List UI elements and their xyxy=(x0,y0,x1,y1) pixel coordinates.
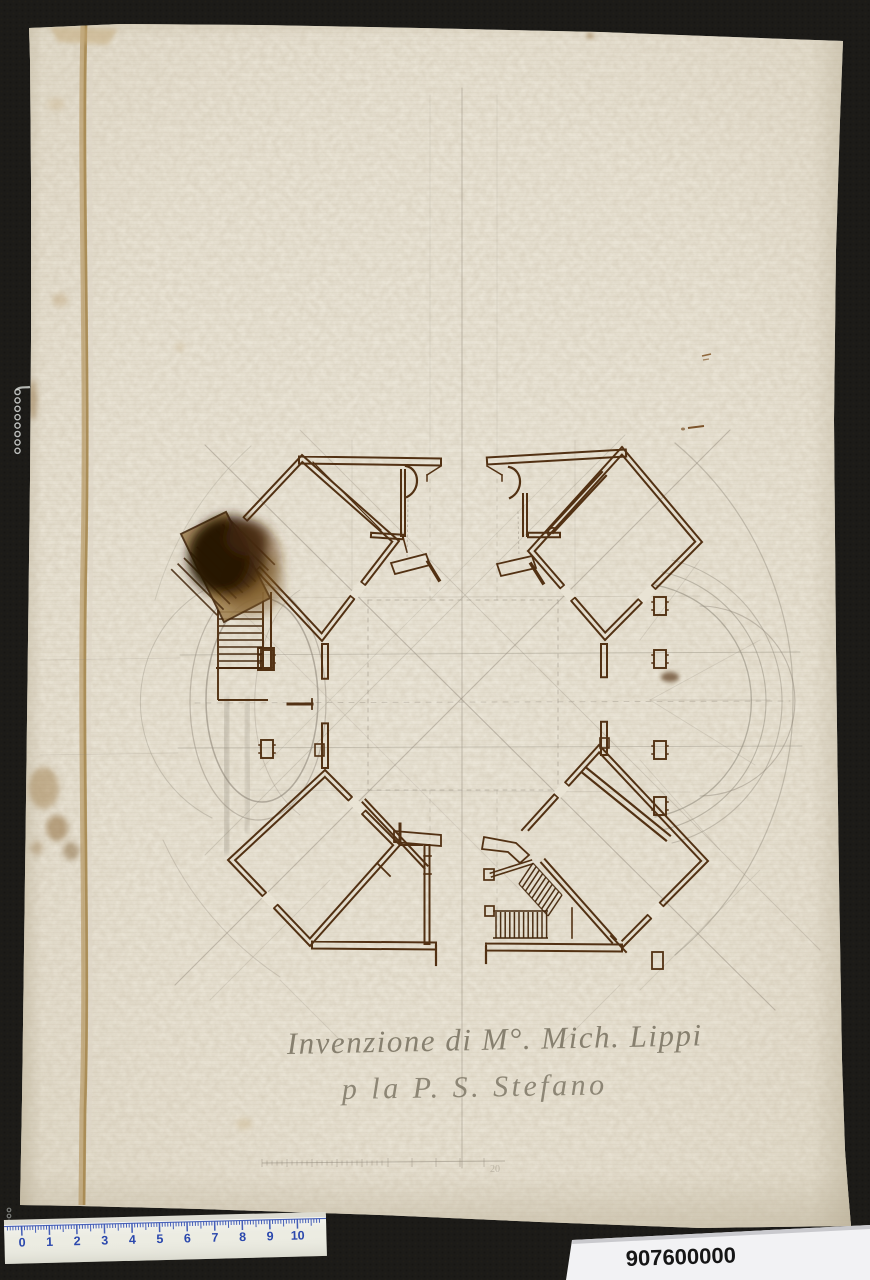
svg-text:0: 0 xyxy=(18,1235,25,1249)
svg-text:8: 8 xyxy=(239,1230,246,1244)
svg-text:4: 4 xyxy=(129,1233,136,1247)
svg-text:p la P. S. Stefano: p la P. S. Stefano xyxy=(340,1068,608,1106)
svg-text:907600000: 907600000 xyxy=(625,1243,736,1271)
svg-text:9: 9 xyxy=(266,1229,273,1243)
svg-text:2: 2 xyxy=(74,1234,81,1248)
svg-text:7: 7 xyxy=(211,1231,218,1245)
svg-text:5: 5 xyxy=(156,1232,163,1246)
svg-text:10: 10 xyxy=(291,1228,305,1242)
svg-text:20: 20 xyxy=(490,1164,500,1175)
svg-text:1: 1 xyxy=(46,1235,53,1249)
svg-text:6: 6 xyxy=(184,1231,191,1245)
svg-text:3: 3 xyxy=(101,1233,108,1247)
